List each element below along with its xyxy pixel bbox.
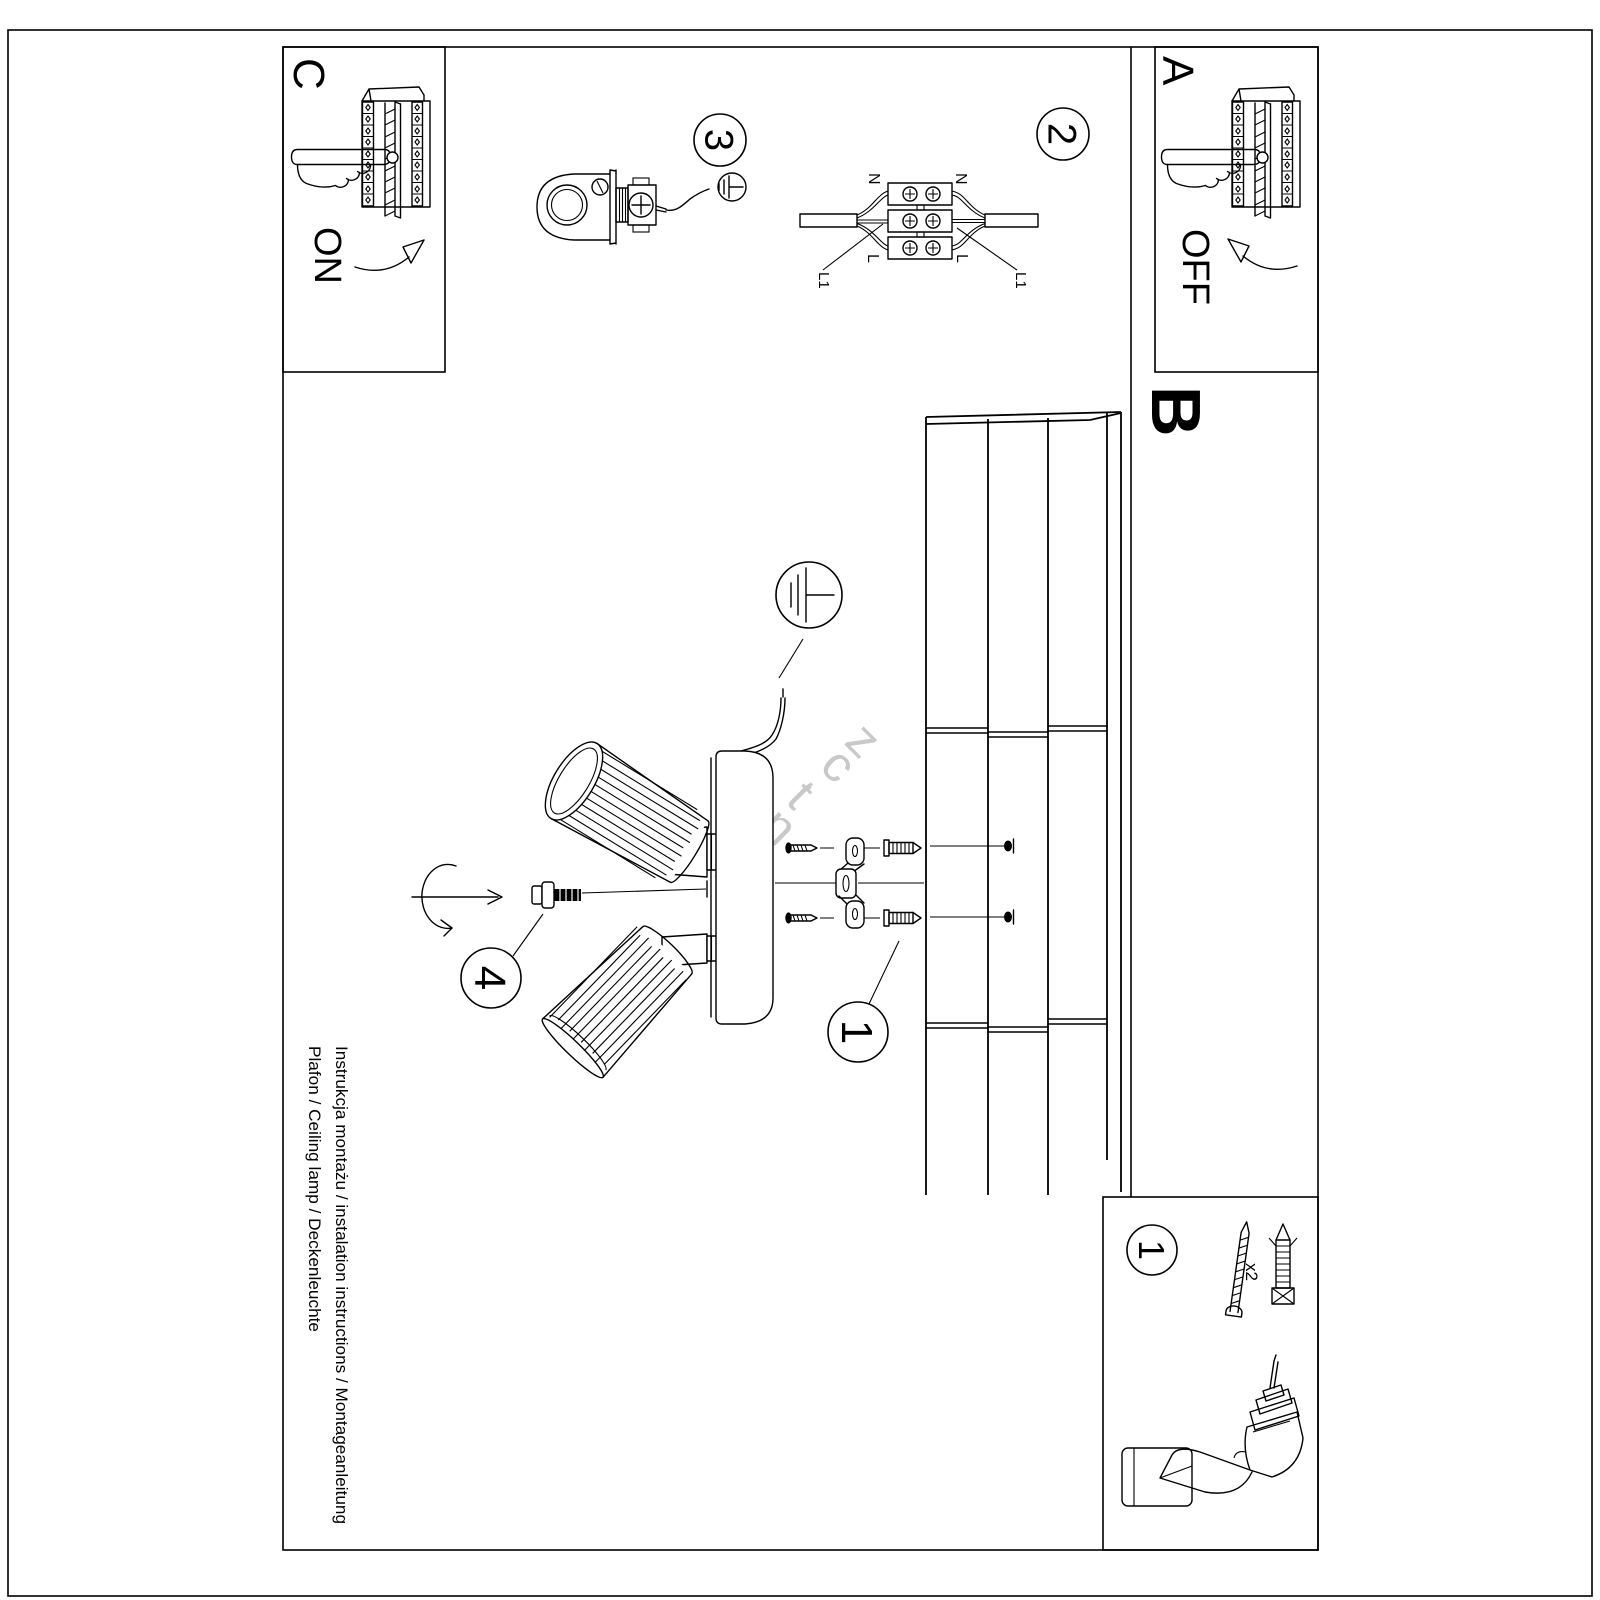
panel-a-letter: A: [1153, 56, 1202, 86]
step1-badge-group: 1: [828, 941, 899, 1062]
step2-wiring-diagram: 2 N N L L L1 L1: [800, 108, 1089, 289]
step3-hook-diagram: 3: [537, 114, 746, 244]
wire-end: [656, 206, 666, 212]
instruction-sheet: rent.cz C ON A OFF B 3: [0, 0, 1600, 1600]
l1-leader-left: [823, 224, 883, 270]
wall-plug-icon: [1269, 1224, 1297, 1304]
tools-badge: 1: [1131, 1240, 1172, 1260]
wall-plug-icon: [884, 910, 921, 926]
step4-badge: 4: [465, 966, 514, 990]
footer-line2: Plafon / Ceiling lamp / Deckenleuchte: [305, 1046, 324, 1332]
panel-c-letter: C: [284, 58, 333, 90]
footer-title: Instrukcja montażu / instalation instruc…: [305, 1046, 351, 1524]
step3-badge: 3: [697, 129, 741, 151]
lamp-assembly: [534, 733, 773, 1082]
arrow-up-right-icon: [355, 240, 424, 270]
panel-c-box: [283, 47, 445, 372]
on-label: ON: [306, 227, 348, 284]
screw-icon: [785, 912, 817, 923]
drill-icon: [1122, 1355, 1303, 1506]
ceiling-planks: [926, 412, 1121, 1195]
label-l-right: L: [953, 254, 970, 263]
step1-badge: 1: [832, 1020, 881, 1044]
fusebox-icon: [292, 87, 431, 218]
instruction-drawing: rent.cz C ON A OFF B 3: [0, 0, 1600, 1600]
ground-symbol-icon: [718, 173, 746, 201]
cable-left: [800, 214, 857, 227]
tools-box-contents: 1 x2: [1122, 1221, 1303, 1506]
ground-symbol-main: [776, 562, 842, 678]
label-l-left: L: [864, 254, 881, 263]
step4-badge-group: 4: [461, 914, 543, 1008]
quantity-label: x2: [1242, 1263, 1261, 1281]
step1-mounting-hardware: [775, 838, 924, 928]
panel-a: A OFF: [1153, 56, 1300, 305]
section-b-letter: B: [1137, 386, 1215, 437]
step2-badge: 2: [1040, 123, 1084, 145]
l1-leader-right: [957, 228, 1017, 270]
label-l1-right: L1: [1012, 272, 1029, 289]
arrow-up-left-icon: [1228, 239, 1297, 269]
panel-c: C ON: [284, 58, 430, 284]
fusebox-icon: [1162, 87, 1301, 218]
label-n-left: N: [865, 173, 882, 185]
wall-plug-icon: [884, 840, 921, 856]
label-n-right: N: [952, 173, 969, 185]
off-label: OFF: [1174, 229, 1216, 305]
hand-icon: [292, 150, 399, 188]
ceiling-screw: [930, 839, 1014, 853]
screw-icon: [785, 842, 817, 853]
footer-line1: Instrukcja montażu / instalation instruc…: [332, 1046, 351, 1524]
terminal-screws: [903, 187, 940, 255]
hand-icon: [1162, 150, 1269, 188]
ceiling-screw: [930, 910, 1014, 924]
cable-right: [985, 214, 1038, 227]
label-l1-left: L1: [815, 272, 832, 289]
rotation-arrow-icon: [412, 864, 502, 936]
canopy: [707, 751, 773, 1024]
mains-cable: [737, 689, 785, 757]
